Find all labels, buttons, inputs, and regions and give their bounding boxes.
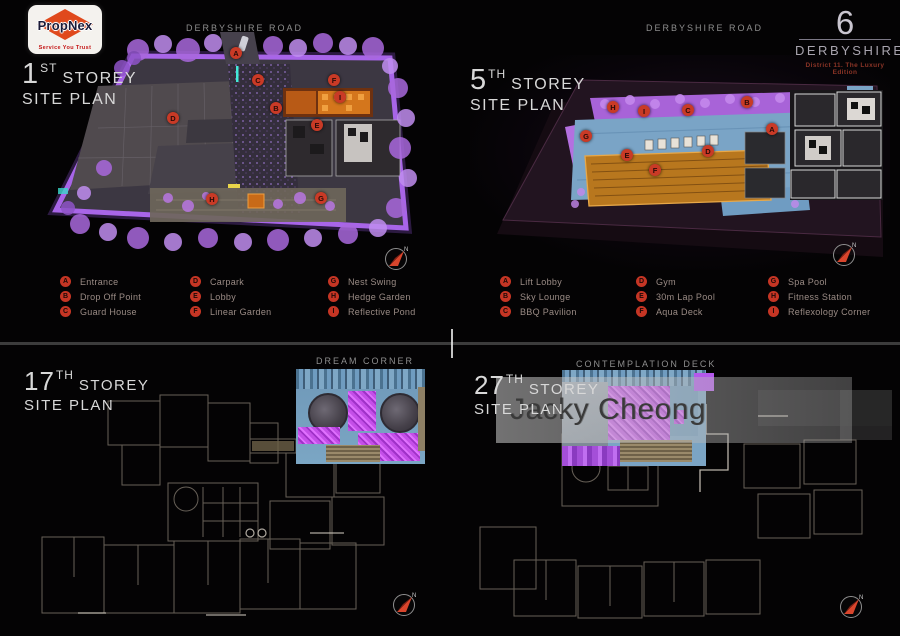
compass-north-icon: N — [392, 590, 418, 618]
deck-tree-disc — [380, 393, 420, 433]
planting-bed — [298, 427, 340, 444]
legend-key-badge: D — [190, 276, 201, 287]
svg-text:N: N — [859, 595, 863, 601]
project-brand-header: 6 DERBYSHIRE District 11. The Luxury Edi… — [795, 6, 895, 76]
project-number: 6 — [795, 6, 895, 40]
plan-marker: H — [607, 101, 619, 113]
plan-marker: I — [334, 91, 346, 103]
plan-marker: E — [621, 149, 633, 161]
legend-item: HFitness Station — [768, 291, 870, 302]
legend-1st-col1: AEntrance BDrop Off Point CGuard House — [60, 276, 141, 317]
legend-key-badge: E — [190, 291, 201, 302]
legend-key-badge: C — [500, 306, 511, 317]
plan-marker: C — [682, 104, 694, 116]
legend-key-badge: I — [768, 306, 779, 317]
legend-key-badge: H — [768, 291, 779, 302]
feature-label-dream-corner: DREAM CORNER — [316, 356, 414, 366]
legend-key-badge: F — [636, 306, 647, 317]
propnex-logo: PropNex Service You Trust — [28, 5, 102, 54]
legend-item: DGym — [636, 276, 715, 287]
legend-key-badge: D — [636, 276, 647, 287]
timber-walkway — [326, 445, 380, 462]
legend-key-badge: B — [60, 291, 71, 302]
propnex-tagline: Service You Trust — [28, 45, 102, 51]
legend-item: BDrop Off Point — [60, 291, 141, 302]
plan-marker: E — [311, 119, 323, 131]
legend-key-badge: C — [60, 306, 71, 317]
project-name: DERBYSHIRE — [795, 43, 895, 58]
header-5th-storey: 5THSTOREY SITE PLAN — [470, 64, 586, 115]
plan-marker: F — [328, 74, 340, 86]
timber-stairs — [620, 440, 692, 462]
legend-key-badge: H — [328, 291, 339, 302]
legend-item: AEntrance — [60, 276, 141, 287]
site-plan-sheet: PropNex Service You Trust 6 DERBYSHIRE D… — [0, 0, 900, 636]
header-17th-storey: 17THSTOREY SITE PLAN — [24, 366, 149, 414]
plan-marker: B — [741, 96, 753, 108]
legend-key-badge: F — [190, 306, 201, 317]
header-27th-storey: 27THSTOREY SITE PLAN — [474, 370, 599, 418]
feature-label-contemplation-deck: CONTEMPLATION DECK — [576, 359, 716, 369]
horizontal-divider — [0, 342, 900, 345]
plan-marker: A — [766, 123, 778, 135]
legend-key-badge: A — [60, 276, 71, 287]
legend-key-badge: I — [328, 306, 339, 317]
legend-item: ALift Lobby — [500, 276, 577, 287]
legend-item: FLinear Garden — [190, 306, 271, 317]
planting-fringe — [562, 446, 620, 466]
legend-item: HHedge Garden — [328, 291, 416, 302]
road-label-1st: DERBYSHIRE ROAD — [186, 23, 303, 33]
legend-item: CGuard House — [60, 306, 141, 317]
legend-item: IReflective Pond — [328, 306, 416, 317]
legend-item: CBBQ Pavilion — [500, 306, 577, 317]
legend-item: FAqua Deck — [636, 306, 715, 317]
plan-marker: D — [167, 112, 179, 124]
legend-key-badge: G — [328, 276, 339, 287]
legend-key-badge: G — [768, 276, 779, 287]
legend-key-badge: E — [636, 291, 647, 302]
legend-5th-col3: GSpa Pool HFitness Station IReflexology … — [768, 276, 870, 317]
legend-5th-col1: ALift Lobby BSky Lounge CBBQ Pavilion — [500, 276, 577, 317]
legend-5th-col2: DGym E30m Lap Pool FAqua Deck — [636, 276, 715, 317]
legend-key-badge: B — [500, 291, 511, 302]
road-label-5th: DERBYSHIRE ROAD — [646, 23, 763, 33]
legend-item: E30m Lap Pool — [636, 291, 715, 302]
legend-item: GSpa Pool — [768, 276, 870, 287]
svg-text:N: N — [412, 593, 416, 599]
planting-bed — [348, 391, 376, 431]
legend-item: ELobby — [190, 291, 271, 302]
propnex-brand-text: PropNex — [28, 18, 102, 33]
svg-text:N: N — [852, 243, 856, 249]
legend-key-badge: A — [500, 276, 511, 287]
legend-1st-col3: GNest Swing HHedge Garden IReflective Po… — [328, 276, 416, 317]
svg-text:N: N — [404, 247, 408, 253]
deck-screen-stripes — [296, 369, 425, 389]
compass-north-icon: N — [832, 240, 858, 268]
compass-north-icon: N — [384, 244, 410, 272]
plan-marker: A — [230, 47, 242, 59]
legend-item: DCarpark — [190, 276, 271, 287]
plan-marker: D — [702, 145, 714, 157]
dream-corner-deck-image — [296, 369, 425, 464]
legend-item: IReflexology Corner — [768, 306, 870, 317]
compass-north-icon: N — [839, 592, 865, 620]
plan-marker: F — [649, 164, 661, 176]
project-subtitle: District 11. The Luxury Edition — [795, 62, 895, 76]
legend-1st-col2: DCarpark ELobby FLinear Garden — [190, 276, 271, 317]
header-1st-storey: 1STSTOREY SITE PLAN — [22, 58, 137, 109]
plan-marker: C — [252, 74, 264, 86]
vertical-divider-tick — [451, 329, 453, 358]
legend-item: GNest Swing — [328, 276, 416, 287]
deck-edge — [418, 387, 425, 451]
plan-marker: B — [270, 102, 282, 114]
plan-marker: G — [315, 192, 327, 204]
plan-marker: H — [206, 193, 218, 205]
legend-item: BSky Lounge — [500, 291, 577, 302]
plan-marker: G — [580, 130, 592, 142]
plan-marker: I — [638, 105, 650, 117]
